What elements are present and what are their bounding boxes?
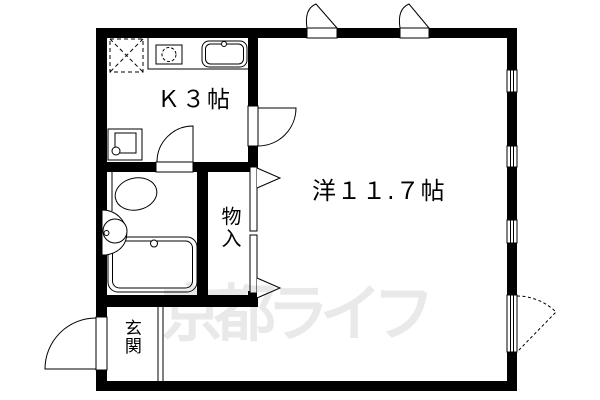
- window-right-2-opening: [507, 146, 517, 167]
- awning-window-2-icon: [399, 4, 429, 28]
- western-room-label: 洋１１.７帖: [312, 179, 446, 204]
- entrance-step-line: [158, 307, 163, 381]
- kitchen-label: Ｋ３帖: [157, 88, 232, 112]
- closet-door-panel-upper: [250, 167, 257, 231]
- wash-basin-icon: [102, 210, 127, 255]
- kitchen-room-door-opening: [248, 106, 258, 146]
- washing-machine-pan-icon: [108, 129, 142, 160]
- kitchen-room-door-swing-icon: [258, 108, 296, 146]
- walls: [96, 28, 517, 391]
- toilet-icon: [112, 174, 160, 214]
- awning-window-top-2-opening: [400, 28, 429, 38]
- wall-openings: [96, 28, 517, 370]
- bathroom-door-swing-icon: [157, 126, 193, 162]
- window-right-1-opening: [507, 70, 517, 92]
- closet-door-panel-lower: [250, 235, 257, 293]
- bottom-wall: [96, 381, 517, 391]
- closet-door-triangle-top-icon: [257, 168, 280, 188]
- bath-storage-bottom-wall: [96, 295, 258, 307]
- awning-window-top-1-opening: [307, 28, 337, 38]
- entrance-door-opening: [96, 317, 107, 370]
- floor-plan: Ｋ３帖 洋１１.７帖 物入 玄関 京都ライフ: [0, 0, 600, 400]
- bath-storage-divider: [197, 172, 208, 307]
- closet-door-triangle-bottom-icon: [257, 278, 280, 298]
- entrance-door-swing-icon: [45, 318, 96, 369]
- gas-stove-icon: [156, 45, 182, 64]
- awning-window-1-icon: [306, 4, 337, 28]
- storage-label: 物入: [219, 206, 240, 258]
- bathroom-door-opening: [156, 162, 193, 172]
- refrigerator-space-icon: [110, 39, 143, 72]
- closet-doors: [250, 167, 280, 298]
- bathroom-fixtures: [102, 172, 197, 292]
- casement-window-swing-icon: [517, 296, 556, 352]
- entrance-label: 玄関: [121, 319, 139, 363]
- window-right-3-opening: [507, 220, 517, 243]
- floor-plan-drawing: [0, 0, 600, 400]
- casement-window-opening: [507, 295, 517, 352]
- door-swings: [45, 108, 296, 369]
- kitchen-room-divider-upper: [248, 38, 258, 106]
- kitchen-sink-icon: [202, 41, 247, 67]
